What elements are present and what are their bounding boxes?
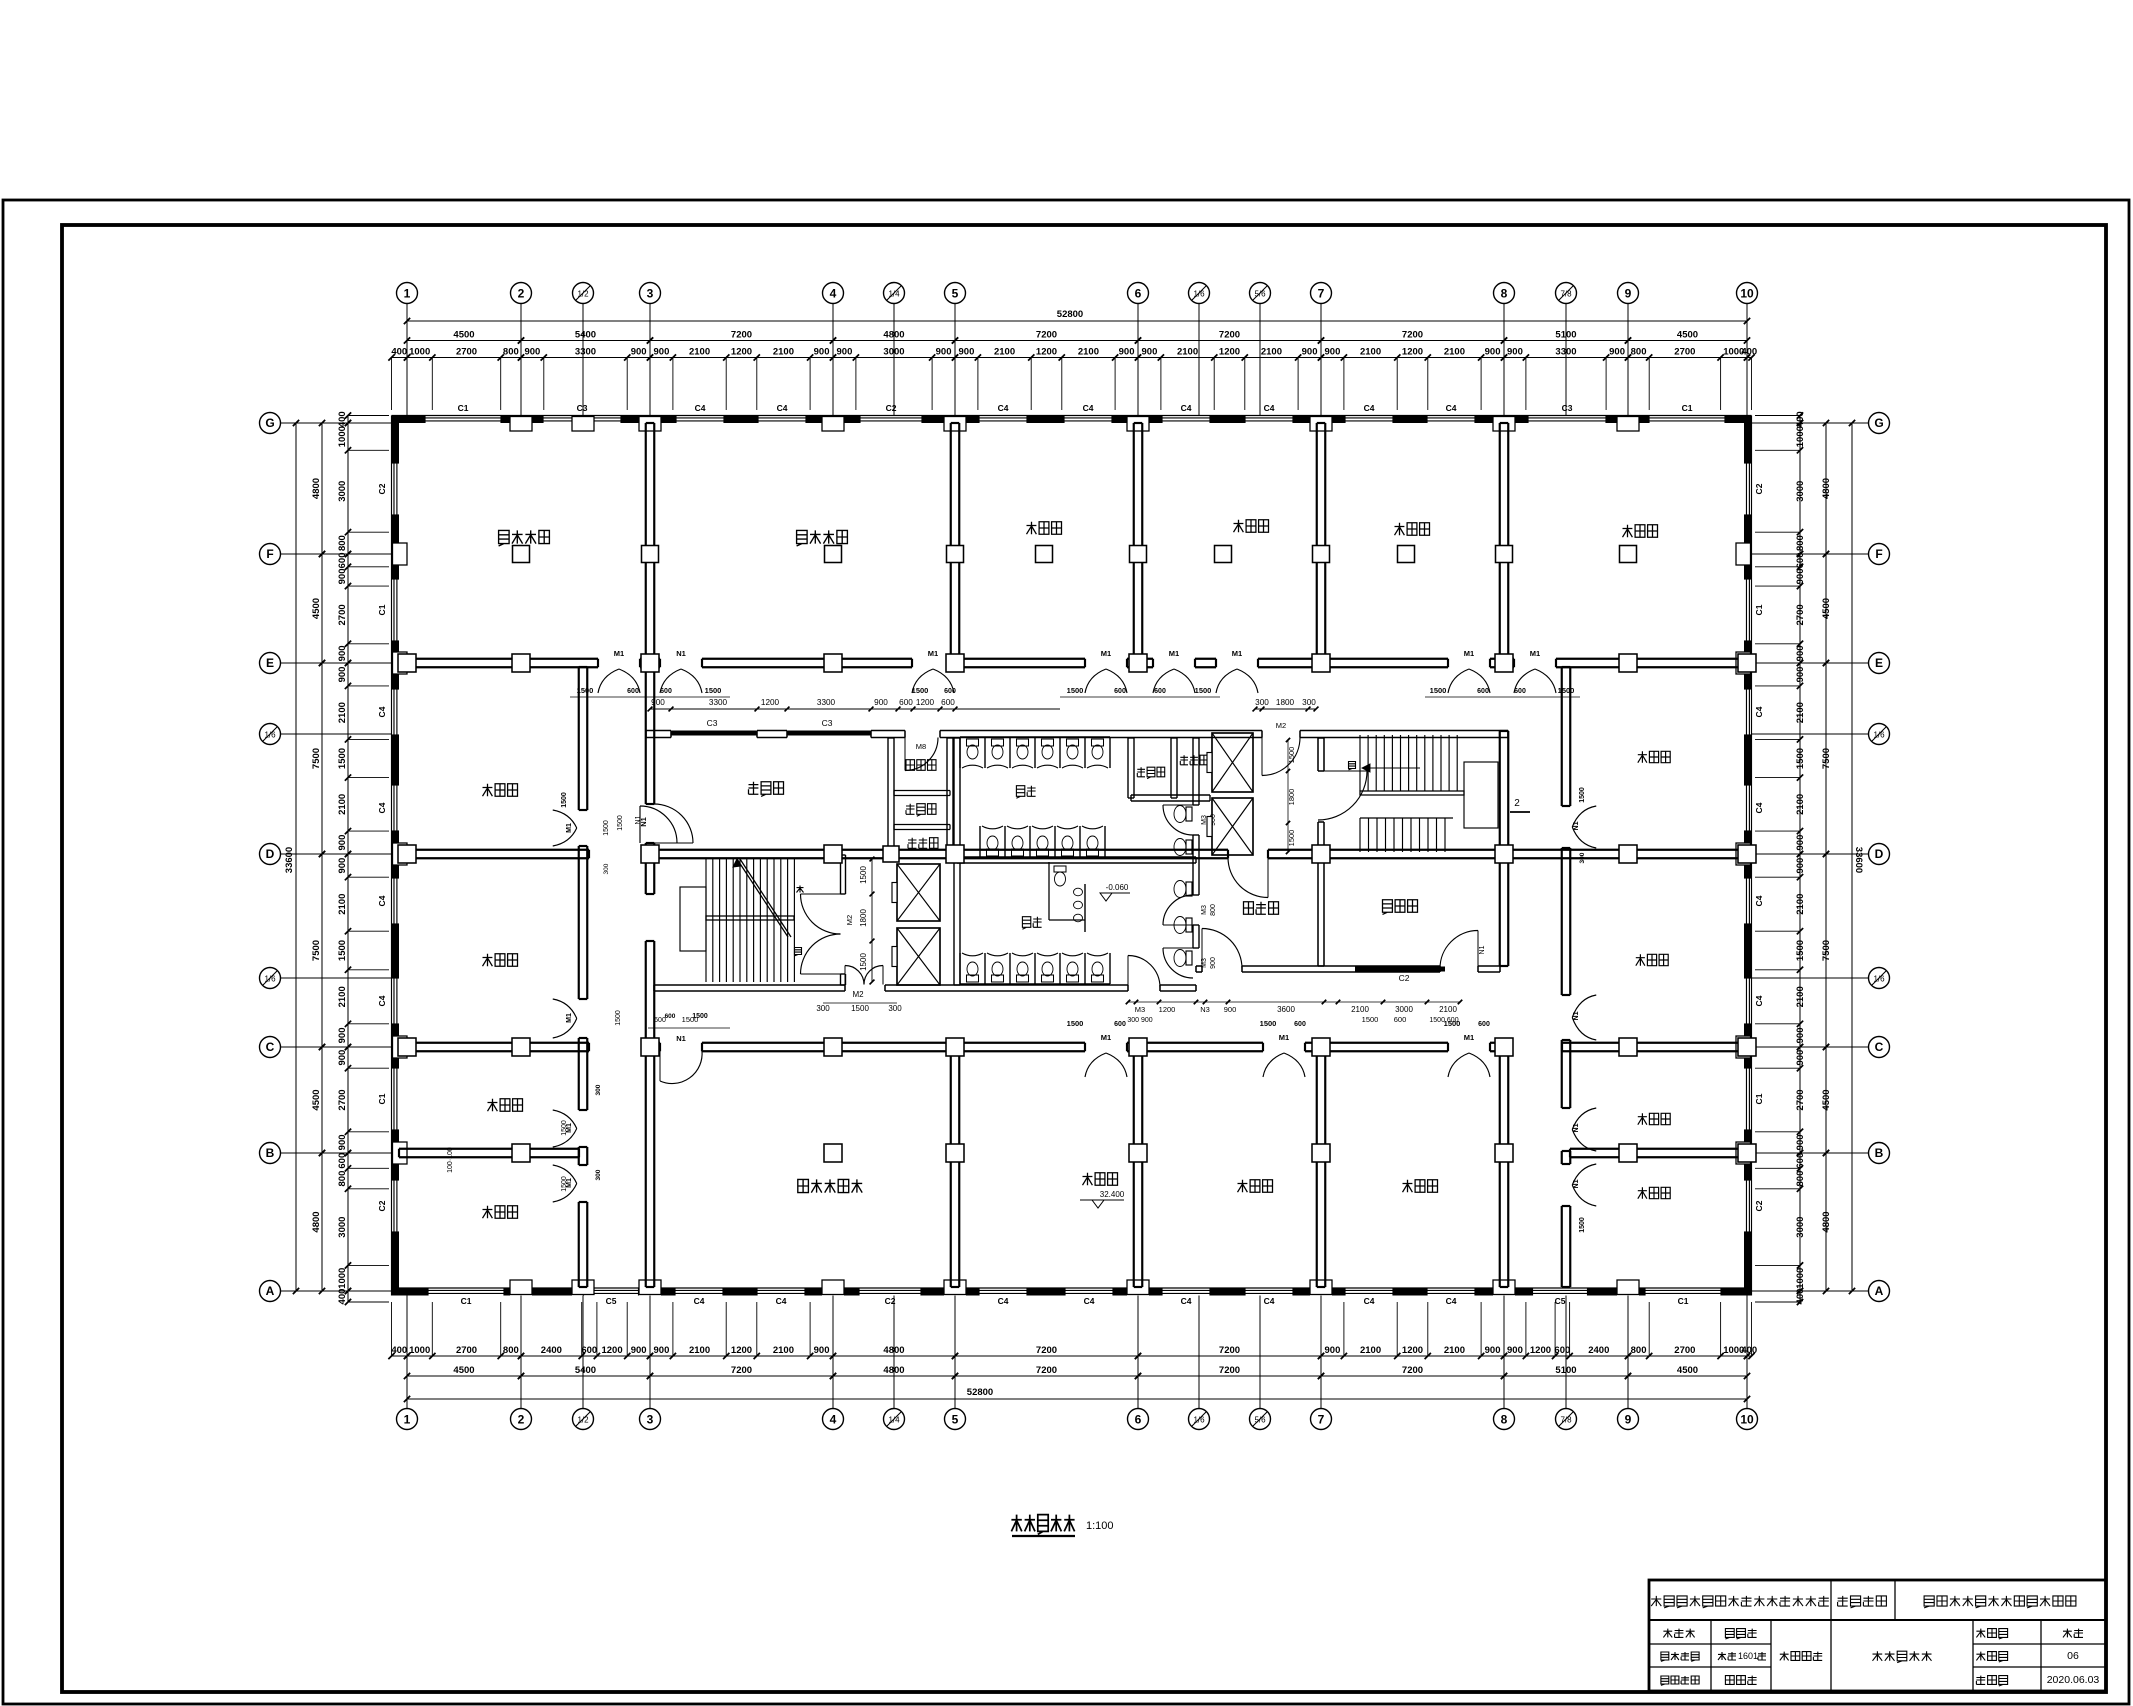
svg-text:9: 9 [1625,287,1632,301]
svg-text:C2: C2 [886,403,897,413]
svg-text:1500: 1500 [615,1010,622,1026]
svg-text:2700: 2700 [1674,347,1695,358]
svg-text:400: 400 [391,1345,407,1356]
svg-text:1: 1 [404,287,411,301]
svg-text:900: 900 [1795,667,1806,683]
svg-text:C4: C4 [377,895,387,906]
svg-text:C4: C4 [998,403,1009,413]
svg-text:900: 900 [631,347,647,358]
svg-text:1500: 1500 [1287,830,1296,847]
svg-text:1500: 1500 [1579,1217,1586,1233]
svg-text:4500: 4500 [453,1365,474,1376]
svg-text:7200: 7200 [1402,1365,1423,1376]
svg-text:800: 800 [1631,347,1647,358]
svg-text:1800: 1800 [859,909,868,927]
svg-text:G: G [265,416,274,430]
svg-text:C4: C4 [1181,403,1192,413]
svg-text:100·100: 100·100 [447,1147,454,1173]
svg-text:2700: 2700 [1795,604,1806,625]
svg-text:33600: 33600 [284,847,295,873]
svg-text:2100: 2100 [1795,794,1806,815]
svg-text:C2: C2 [1399,973,1410,983]
svg-text:B: B [1875,1146,1884,1160]
svg-text:M3: M3 [1135,1005,1145,1014]
svg-text:2700: 2700 [337,1089,348,1110]
svg-text:800: 800 [503,347,519,358]
svg-text:4500: 4500 [453,330,474,341]
svg-text:1500: 1500 [1430,686,1447,695]
svg-text:600: 600 [1154,688,1166,695]
svg-text:900: 900 [1210,957,1217,969]
svg-text:2100: 2100 [1444,347,1465,358]
svg-text:600: 600 [941,698,955,707]
svg-text:C4: C4 [377,802,387,813]
svg-text:1200: 1200 [1219,347,1240,358]
svg-text:1500: 1500 [912,686,929,695]
svg-text:7500: 7500 [1821,940,1832,961]
svg-text:900: 900 [337,645,348,661]
svg-text:N1: N1 [1479,945,1486,954]
svg-text:4500: 4500 [1677,330,1698,341]
svg-text:2700: 2700 [456,347,477,358]
svg-text:M2: M2 [1276,721,1286,730]
svg-text:52800: 52800 [967,1387,993,1398]
svg-text:3000: 3000 [1395,1005,1413,1014]
svg-text:C2: C2 [1754,1200,1764,1211]
svg-text:300: 300 [603,863,610,874]
svg-text:900: 900 [337,835,348,851]
svg-text:4800: 4800 [1821,1211,1832,1232]
svg-text:N3: N3 [1200,1005,1210,1014]
svg-text:3000: 3000 [1795,481,1806,502]
svg-text:1500: 1500 [337,940,348,961]
svg-text:4500: 4500 [311,1089,322,1110]
svg-text:300: 300 [595,1169,602,1180]
svg-text:3300: 3300 [575,347,596,358]
svg-text:2020.06.03: 2020.06.03 [2047,1674,2100,1686]
svg-text:900: 900 [1302,347,1318,358]
svg-text:C2: C2 [885,1296,896,1306]
svg-text:900: 900 [874,698,888,707]
svg-text:2400: 2400 [1588,1345,1609,1356]
svg-text:C: C [1875,1040,1884,1054]
svg-text:C2: C2 [377,1200,387,1211]
svg-text:D: D [266,847,275,861]
svg-text:300: 300 [1579,852,1586,863]
svg-text:1000: 1000 [409,347,430,358]
svg-text:2100: 2100 [689,347,710,358]
svg-text:1200: 1200 [1402,1345,1423,1356]
svg-text:C4: C4 [998,1296,1009,1306]
svg-text:C5: C5 [606,1296,617,1306]
svg-text:600: 600 [627,688,639,695]
svg-text:800: 800 [1795,535,1806,551]
svg-text:1:100: 1:100 [1086,1520,1114,1532]
svg-text:600: 600 [1795,1153,1806,1169]
svg-text:2700: 2700 [1674,1345,1695,1356]
svg-text:1500: 1500 [617,815,624,831]
svg-text:3600: 3600 [1277,1005,1295,1014]
svg-text:800: 800 [1631,1345,1647,1356]
svg-text:1500: 1500 [1362,1015,1379,1024]
svg-text:6: 6 [1135,1413,1142,1427]
svg-text:1500: 1500 [561,792,568,808]
svg-text:M3: M3 [1201,905,1208,915]
svg-text:900: 900 [337,1027,348,1043]
svg-text:1500: 1500 [1795,748,1806,769]
svg-text:1: 1 [404,1413,411,1427]
svg-text:900: 900 [936,347,952,358]
svg-text:900: 900 [1795,645,1806,661]
svg-text:C3: C3 [577,403,588,413]
svg-text:2700: 2700 [337,604,348,625]
svg-text:2100: 2100 [337,986,348,1007]
svg-text:1601: 1601 [1738,1651,1758,1661]
svg-text:5400: 5400 [575,1365,596,1376]
svg-text:1200: 1200 [1036,347,1057,358]
svg-text:C4: C4 [1446,1296,1457,1306]
svg-text:1800: 1800 [1276,698,1295,707]
svg-text:C1: C1 [1754,1093,1764,1104]
svg-text:N1: N1 [1573,1123,1580,1132]
svg-text:600: 600 [581,1345,597,1356]
svg-text:7200: 7200 [1219,1345,1240,1356]
svg-text:1000: 1000 [337,1268,348,1289]
svg-text:800: 800 [337,535,348,551]
svg-text:3000: 3000 [883,347,904,358]
svg-text:7: 7 [1318,1413,1325,1427]
svg-text:5100: 5100 [1555,1365,1576,1376]
svg-text:900: 900 [1795,858,1806,874]
svg-text:300: 300 [816,1004,830,1013]
svg-text:3300: 3300 [817,698,836,707]
svg-text:N1: N1 [676,1034,686,1043]
svg-text:900: 900 [837,347,853,358]
svg-text:1200: 1200 [1530,1345,1551,1356]
svg-text:F: F [1875,547,1882,561]
svg-text:800: 800 [1795,1171,1806,1187]
svg-text:600: 600 [899,698,913,707]
svg-text:800: 800 [503,1345,519,1356]
svg-text:M1: M1 [566,1013,573,1023]
svg-text:900: 900 [1142,347,1158,358]
svg-text:900: 900 [1485,1345,1501,1356]
svg-text:06: 06 [2067,1650,2079,1662]
svg-text:900: 900 [1119,347,1135,358]
svg-text:2100: 2100 [337,702,348,723]
svg-text:600: 600 [665,1013,676,1020]
svg-text:600: 600 [944,688,956,695]
svg-text:900: 900 [1795,1050,1806,1066]
svg-text:N1: N1 [635,815,642,824]
svg-text:C4: C4 [377,706,387,717]
svg-text:A: A [1875,1284,1884,1298]
svg-text:2100: 2100 [689,1345,710,1356]
svg-text:4800: 4800 [311,1211,322,1232]
svg-text:2100: 2100 [1360,1345,1381,1356]
svg-text:300: 300 [1255,698,1269,707]
svg-text:900: 900 [1795,835,1806,851]
svg-text:300: 300 [888,1004,902,1013]
svg-text:400: 400 [1795,411,1806,427]
svg-text:1000: 1000 [1795,426,1806,447]
svg-text:D: D [1875,847,1884,861]
svg-text:2700: 2700 [1795,1089,1806,1110]
svg-text:4800: 4800 [1821,478,1832,499]
svg-text:C: C [266,1040,275,1054]
svg-text:32.400: 32.400 [1100,1190,1125,1199]
svg-text:C3: C3 [1562,403,1573,413]
svg-text:F: F [266,547,273,561]
svg-text:400: 400 [1741,1345,1757,1356]
svg-text:8: 8 [1501,287,1508,301]
svg-text:4800: 4800 [311,478,322,499]
svg-text:1200: 1200 [731,347,752,358]
svg-text:900: 900 [1795,1027,1806,1043]
svg-text:4500: 4500 [311,598,322,619]
svg-text:B: B [266,1146,275,1160]
svg-text:2400: 2400 [541,1345,562,1356]
svg-text:1500: 1500 [1579,787,1586,803]
svg-text:C4: C4 [694,1296,705,1306]
svg-text:1200: 1200 [1402,347,1423,358]
svg-text:C4: C4 [777,403,788,413]
svg-text:900: 900 [814,347,830,358]
svg-text:600: 600 [1514,688,1526,695]
svg-text:2100: 2100 [1795,986,1806,1007]
svg-text:N1: N1 [1573,821,1580,830]
svg-text:C1: C1 [458,403,469,413]
svg-text:M1: M1 [1232,649,1242,658]
svg-text:M1: M1 [1169,649,1179,658]
svg-text:900: 900 [1224,1005,1237,1014]
svg-text:900: 900 [1325,347,1341,358]
svg-text:1500: 1500 [1067,686,1084,695]
svg-text:2100: 2100 [1360,347,1381,358]
svg-text:7200: 7200 [1036,330,1057,341]
svg-text:7200: 7200 [731,1365,752,1376]
svg-text:1500: 1500 [1067,1019,1084,1028]
svg-text:7200: 7200 [731,330,752,341]
svg-text:2100: 2100 [1795,702,1806,723]
svg-text:1500: 1500 [603,820,610,836]
svg-text:1200: 1200 [601,1345,622,1356]
svg-text:M2: M2 [845,915,854,925]
svg-text:400: 400 [337,1289,348,1305]
svg-text:900: 900 [814,1345,830,1356]
svg-text:900: 900 [1325,1345,1341,1356]
svg-text:1500: 1500 [561,1176,568,1192]
svg-text:7200: 7200 [1036,1345,1057,1356]
svg-text:C1: C1 [1754,604,1764,615]
svg-text:7500: 7500 [311,748,322,769]
svg-text:8: 8 [1501,1413,1508,1427]
svg-text:4: 4 [830,287,837,301]
svg-text:2: 2 [518,1413,525,1427]
svg-text:4500: 4500 [1821,1089,1832,1110]
svg-text:3000: 3000 [1795,1217,1806,1238]
svg-text:400: 400 [1741,347,1757,358]
svg-text:5: 5 [952,1413,959,1427]
svg-text:N1: N1 [1573,1011,1580,1020]
svg-text:900: 900 [651,698,665,707]
svg-text:2: 2 [1514,798,1520,809]
svg-text:5100: 5100 [1555,330,1576,341]
svg-text:900: 900 [337,858,348,874]
svg-text:3300: 3300 [1555,347,1576,358]
svg-text:7200: 7200 [1402,330,1423,341]
svg-text:M1: M1 [1279,1033,1289,1042]
svg-text:C4: C4 [1264,1296,1275,1306]
svg-text:600: 600 [1114,688,1126,695]
svg-text:C4: C4 [1084,1296,1095,1306]
svg-text:900: 900 [1795,569,1806,585]
svg-text:1500: 1500 [859,866,868,884]
svg-text:7: 7 [1318,287,1325,301]
svg-text:7500: 7500 [311,940,322,961]
svg-text:52800: 52800 [1057,309,1083,320]
svg-text:C4: C4 [1083,403,1094,413]
svg-text:900: 900 [631,1345,647,1356]
svg-text:M1: M1 [1464,1033,1474,1042]
svg-text:900: 900 [1609,347,1625,358]
svg-text:2700: 2700 [456,1345,477,1356]
svg-text:E: E [266,656,274,670]
svg-text:4500: 4500 [1821,598,1832,619]
svg-text:900: 900 [337,667,348,683]
svg-text:900: 900 [1507,1345,1523,1356]
svg-text:600: 600 [1554,1345,1570,1356]
svg-text:1500: 1500 [1195,686,1212,695]
svg-text:C4: C4 [1446,403,1457,413]
svg-text:10: 10 [1740,287,1754,301]
svg-text:C4: C4 [1754,706,1764,717]
svg-text:C3: C3 [822,718,833,728]
svg-text:M1: M1 [1530,649,1540,658]
svg-text:2100: 2100 [337,794,348,815]
svg-text:7500: 7500 [1821,748,1832,769]
svg-text:1500: 1500 [1795,940,1806,961]
svg-text:600: 600 [1294,1021,1306,1028]
svg-text:5: 5 [952,287,959,301]
svg-text:1200: 1200 [1159,1005,1176,1014]
svg-text:900: 900 [1485,347,1501,358]
svg-text:6: 6 [1135,287,1142,301]
svg-text:M1: M1 [1464,649,1474,658]
svg-text:3000: 3000 [337,1217,348,1238]
svg-text:900: 900 [524,347,540,358]
svg-text:1500: 1500 [1287,747,1296,764]
svg-text:C1: C1 [1678,1296,1689,1306]
svg-text:1500: 1500 [705,686,722,695]
svg-text:600: 600 [337,1153,348,1169]
svg-text:M2: M2 [852,990,864,999]
svg-text:600: 600 [660,688,672,695]
svg-text:1500: 1500 [561,1120,568,1136]
svg-text:5400: 5400 [575,330,596,341]
svg-text:900: 900 [959,347,975,358]
svg-text:1500: 1500 [692,1013,708,1020]
svg-text:900: 900 [337,1134,348,1150]
svg-text:2100: 2100 [1261,347,1282,358]
svg-text:-0.060: -0.060 [1106,883,1129,892]
svg-text:800: 800 [337,1171,348,1187]
svg-text:7200: 7200 [1036,1365,1057,1376]
svg-text:900: 900 [1507,347,1523,358]
svg-text:9: 9 [1625,1413,1632,1427]
svg-text:2100: 2100 [1078,347,1099,358]
svg-text:2100: 2100 [994,347,1015,358]
svg-text:N1: N1 [676,649,686,658]
svg-text:4500: 4500 [1677,1365,1698,1376]
svg-text:900: 900 [654,1345,670,1356]
svg-text:M1: M1 [614,649,624,658]
svg-text:N1: N1 [1573,1179,1580,1188]
svg-text:300: 300 [595,1084,602,1095]
svg-text:C2: C2 [377,483,387,494]
svg-text:1500: 1500 [1444,1019,1461,1028]
svg-text:M1: M1 [928,649,938,658]
svg-text:300 900: 300 900 [1127,1017,1152,1024]
svg-text:C4: C4 [776,1296,787,1306]
svg-text:C4: C4 [1264,403,1275,413]
svg-text:800: 800 [1210,904,1217,916]
svg-text:3: 3 [647,287,654,301]
svg-text:C4: C4 [1364,1296,1375,1306]
svg-text:4800: 4800 [883,1365,904,1376]
svg-text:4: 4 [830,1413,837,1427]
svg-text:1800: 1800 [1287,789,1296,806]
svg-text:1200: 1200 [761,698,780,707]
svg-text:2100: 2100 [773,1345,794,1356]
svg-text:C5: C5 [1555,1296,1566,1306]
svg-text:M8: M8 [916,742,926,751]
svg-text:C4: C4 [1364,403,1375,413]
svg-text:600: 600 [1394,1015,1407,1024]
svg-text:400: 400 [391,347,407,358]
svg-text:1500: 1500 [1558,686,1575,695]
svg-text:2100: 2100 [1351,1005,1369,1014]
svg-text:1000: 1000 [1795,1268,1806,1289]
svg-text:3300: 3300 [709,698,728,707]
svg-text:C2: C2 [1754,483,1764,494]
svg-text:C4: C4 [1754,802,1764,813]
svg-text:2100: 2100 [1177,347,1198,358]
svg-text:C1: C1 [377,1093,387,1104]
svg-text:600: 600 [1477,688,1489,695]
svg-text:1500: 1500 [337,748,348,769]
svg-text:M1: M1 [1101,649,1111,658]
svg-text:2100: 2100 [1795,894,1806,915]
svg-text:1500: 1500 [859,953,868,971]
svg-text:600: 600 [1478,1021,1490,1028]
svg-text:1000: 1000 [409,1345,430,1356]
svg-text:3: 3 [647,1413,654,1427]
svg-text:C1: C1 [1682,403,1693,413]
svg-text:1500: 1500 [577,686,594,695]
svg-text:C4: C4 [1181,1296,1192,1306]
svg-text:4800: 4800 [883,1345,904,1356]
svg-text:10: 10 [1740,1413,1754,1427]
svg-text:M1: M1 [1101,1033,1111,1042]
svg-text:1200: 1200 [731,1345,752,1356]
svg-text:4800: 4800 [883,330,904,341]
svg-text:C1: C1 [377,604,387,615]
svg-text:A: A [266,1284,275,1298]
svg-text:C4: C4 [1754,995,1764,1006]
svg-text:E: E [1875,656,1883,670]
svg-text:300: 300 [1302,698,1316,707]
